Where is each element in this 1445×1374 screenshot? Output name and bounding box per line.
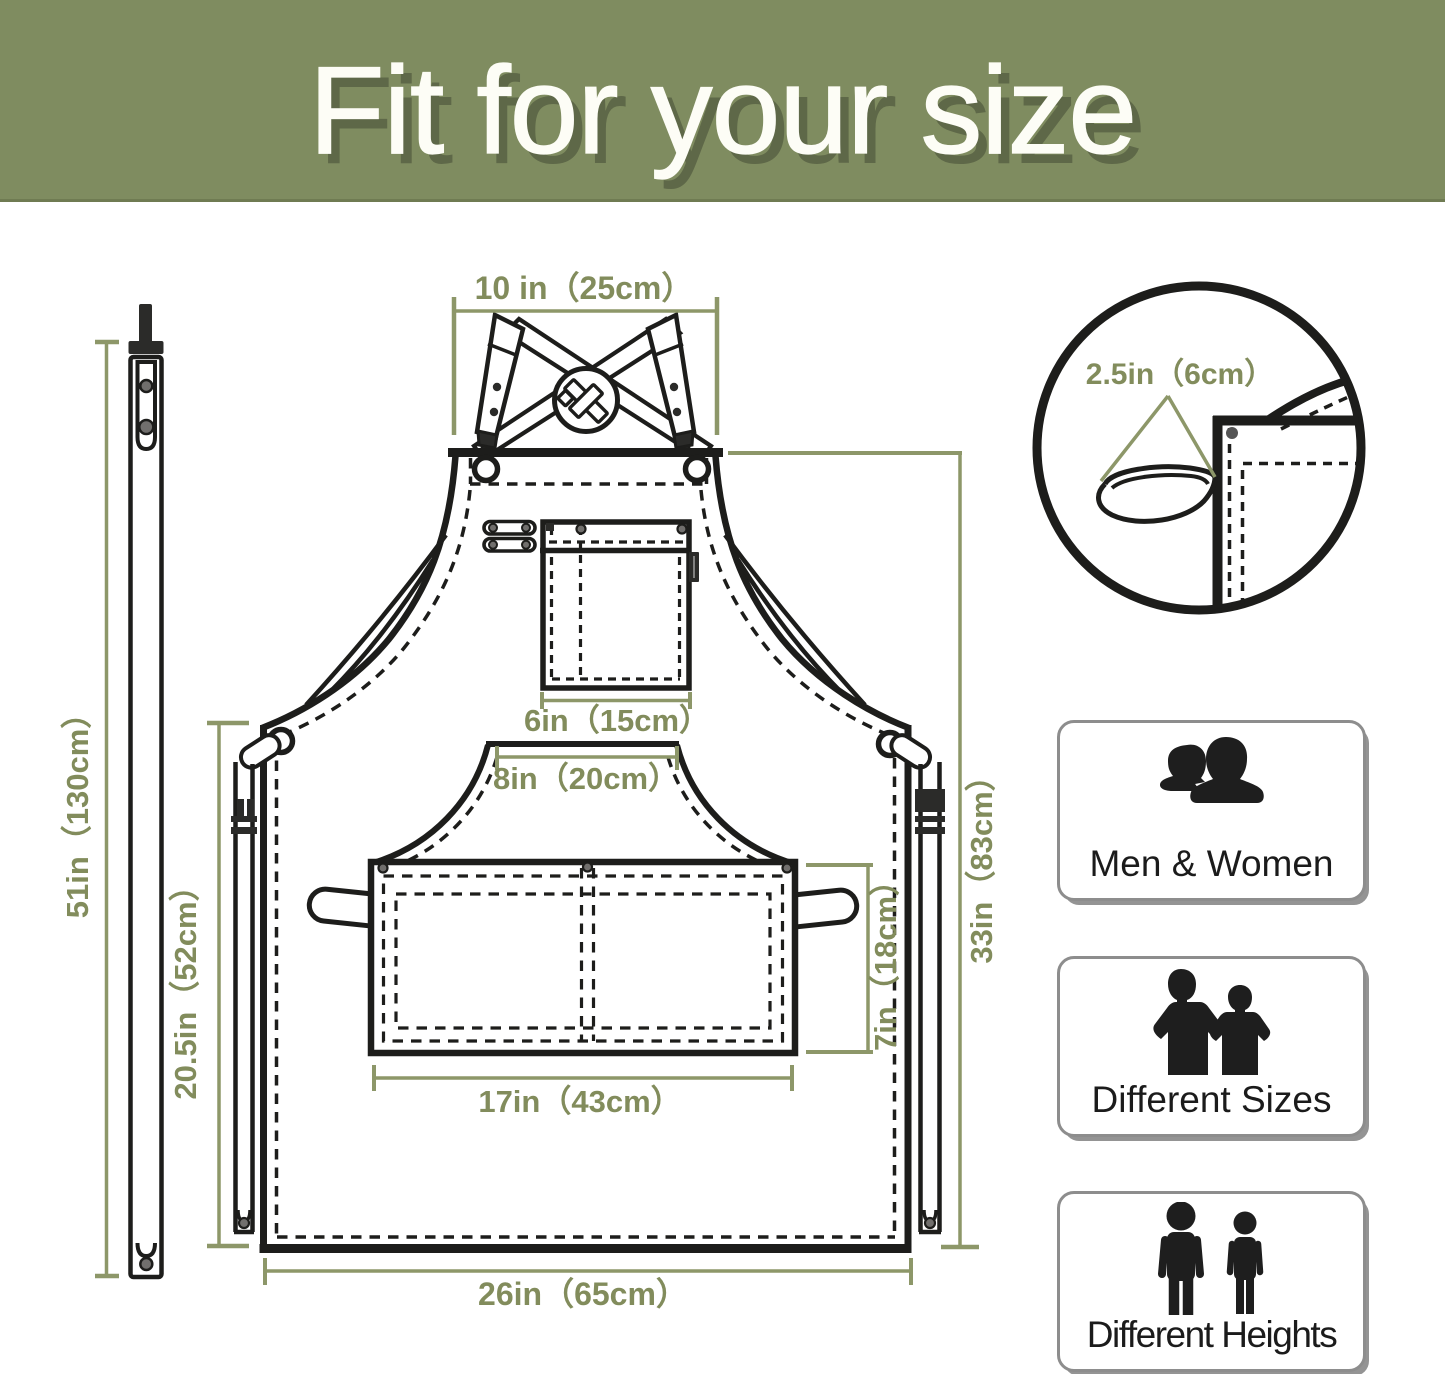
svg-text:33in（83cm）: 33in（83cm） <box>964 760 999 963</box>
svg-text:51in（130cm）: 51in（130cm） <box>60 698 95 919</box>
svg-text:20.5in（52cm）: 20.5in（52cm） <box>168 870 203 1099</box>
svg-text:26in（65cm）: 26in（65cm） <box>478 1276 688 1312</box>
svg-text:7in（18cm）: 7in（18cm） <box>868 865 903 1051</box>
svg-text:6in（15cm）: 6in（15cm） <box>524 703 710 738</box>
svg-text:10 in（25cm）: 10 in（25cm） <box>475 270 694 306</box>
svg-text:2.5in（6cm）: 2.5in（6cm） <box>1086 357 1274 391</box>
svg-text:8in（20cm）: 8in（20cm） <box>493 761 679 796</box>
svg-text:17in（43cm）: 17in（43cm） <box>478 1084 681 1119</box>
